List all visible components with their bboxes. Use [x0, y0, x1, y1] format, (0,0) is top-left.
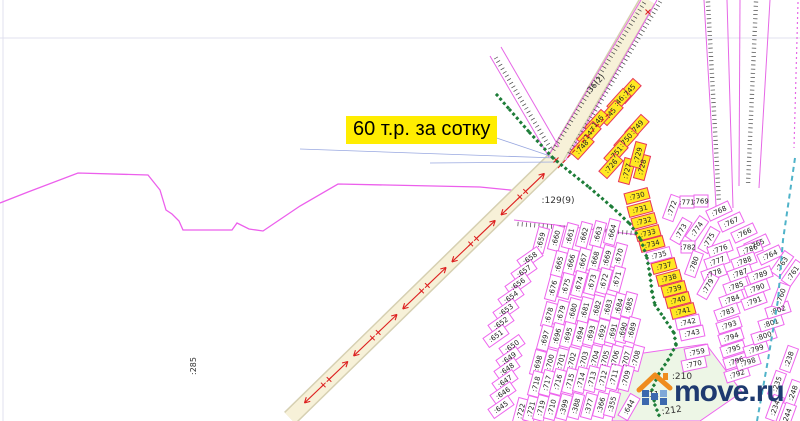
survey-tick [522, 104, 526, 106]
survey-tick [626, 55, 630, 57]
green-dot [622, 216, 626, 220]
survey-tick [649, 15, 653, 17]
survey-tick [516, 93, 520, 95]
green-dot [668, 325, 672, 329]
survey-tick [537, 129, 541, 131]
house-pixel [642, 398, 649, 405]
survey-tick [548, 147, 552, 149]
green-dot [618, 212, 622, 216]
green-dot [600, 197, 604, 201]
road-corridor [704, 0, 733, 208]
green-dot [572, 173, 576, 177]
survey-tick [546, 143, 550, 145]
survey-tick [654, 8, 658, 10]
road-corridor-edge [759, 0, 770, 188]
house-pixel-light [660, 390, 667, 397]
survey-tick [624, 59, 628, 61]
survey-tick [498, 64, 502, 66]
survey-tick [632, 44, 636, 46]
green-dot [605, 200, 609, 204]
survey-tick [641, 30, 645, 32]
moveru-logo-text: move.ru [674, 375, 784, 409]
survey-tick [524, 107, 528, 109]
survey-tick [630, 48, 634, 50]
green-dot [502, 101, 506, 105]
green-dot [662, 316, 666, 320]
price-label-text: 60 т.р. за сотку [353, 118, 490, 140]
green-dot [659, 312, 663, 316]
green-dot [649, 278, 653, 282]
plot-label: :761 [786, 264, 800, 281]
survey-tick [527, 111, 531, 113]
plot-label: :769 [693, 197, 709, 205]
survey-tick [639, 33, 643, 35]
parcel-boundary-line [0, 173, 530, 231]
survey-tick [617, 69, 621, 71]
survey-tick [628, 51, 632, 53]
survey-tick [656, 4, 660, 6]
house-pixel [642, 390, 649, 397]
green-dot [592, 189, 596, 193]
survey-tick [509, 82, 513, 84]
moveru-watermark: move.ru [634, 369, 800, 417]
green-dot [649, 284, 653, 288]
survey-tick [544, 140, 548, 142]
survey-tick [531, 118, 535, 120]
green-dot [522, 124, 526, 128]
survey-tick [529, 114, 533, 116]
green-dot [596, 193, 600, 197]
survey-tick [643, 26, 647, 28]
green-dot [519, 120, 523, 124]
survey-tick [621, 62, 625, 64]
house-icon [634, 369, 674, 417]
plot-label: :782 [680, 243, 696, 251]
green-dot [564, 166, 568, 170]
green-dot [614, 209, 618, 213]
dimension-leader-line [430, 162, 558, 163]
road-corridor-edge [739, 0, 740, 186]
survey-tick [514, 89, 518, 91]
road-corridor-edge [490, 56, 549, 157]
green-dot [515, 116, 519, 120]
survey-tick [494, 57, 498, 59]
survey-tick [505, 75, 509, 77]
house-chimney-icon [663, 373, 668, 380]
green-dot [665, 320, 669, 324]
green-dot [568, 170, 572, 174]
dimension-leader-line [300, 149, 556, 158]
road-corridor [739, 0, 770, 188]
house-pixel [651, 393, 658, 400]
road-corridor-edge [727, 0, 733, 208]
survey-tick [647, 19, 651, 21]
road-corridor-edge [704, 0, 716, 206]
green-dot [576, 177, 580, 181]
survey-tick [520, 100, 524, 102]
survey-tick [518, 96, 522, 98]
road-corridor [490, 47, 559, 157]
survey-tick [511, 86, 515, 88]
survey-tick [615, 73, 619, 75]
green-dot [511, 112, 515, 116]
survey-tick [658, 1, 662, 3]
house-pixel [660, 398, 667, 405]
survey-tick [496, 60, 500, 62]
survey-tick [540, 132, 544, 134]
survey-tick [645, 23, 649, 25]
survey-tick [619, 66, 623, 68]
green-dot [495, 93, 499, 97]
area-label: :129(9) [542, 196, 575, 206]
survey-tick [542, 136, 546, 138]
green-dot [650, 290, 654, 294]
cadastral-map-canvas: :745:46:45:146:147:748:749:750:751:726:7… [0, 0, 800, 421]
survey-tick [535, 125, 539, 127]
green-dot [647, 267, 651, 271]
cadastral-map-screenshot: :745:46:45:146:147:748:749:750:751:726:7… [0, 0, 800, 421]
green-dot [656, 307, 660, 311]
green-dot [673, 336, 677, 340]
area-label: :285 [189, 357, 198, 375]
green-dot [532, 135, 536, 139]
survey-tick [533, 122, 537, 124]
dotted-boundary-line [794, 2, 798, 148]
survey-tick [634, 41, 638, 43]
survey-tick [503, 71, 507, 73]
green-dot [651, 295, 655, 299]
survey-tick [507, 78, 511, 80]
green-dot [581, 180, 585, 184]
price-label: 60 т.р. за сотку [346, 116, 497, 144]
survey-tick [613, 77, 617, 79]
green-dot [498, 97, 502, 101]
survey-tick [652, 12, 656, 14]
survey-tick [501, 68, 505, 70]
